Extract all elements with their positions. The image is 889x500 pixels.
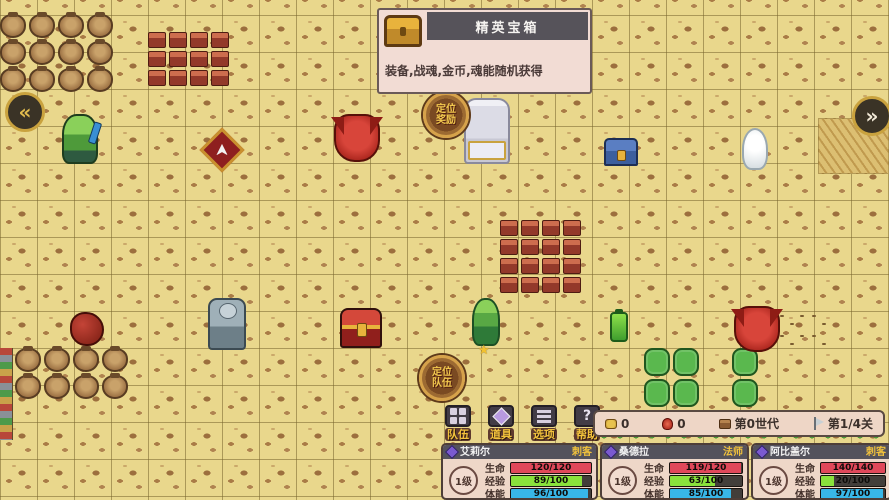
status-item: 第1/4关 — [812, 415, 873, 432]
generation-icon — [719, 419, 731, 429]
stat-bar: 85/100 — [669, 488, 743, 500]
brick — [211, 51, 229, 67]
spirit-enemy[interactable] — [742, 128, 768, 170]
level-badge: 1级 — [449, 466, 478, 495]
stat-row: 体能85/100 — [644, 487, 743, 500]
brick — [148, 70, 166, 86]
elite-chest[interactable] — [340, 308, 382, 348]
brick — [542, 239, 560, 255]
stat-value: 85/100 — [670, 489, 742, 499]
gem-icon — [755, 445, 769, 459]
cactus — [673, 348, 699, 376]
elite-chest-tooltip: 精英宝箱 装备,战魂,金币,魂能随机获得 — [377, 8, 592, 94]
character-class: 刺客 — [572, 446, 592, 459]
character-class: 刺客 — [866, 446, 886, 459]
pot — [102, 375, 128, 399]
brick — [500, 239, 518, 255]
badge-text: 定位 — [432, 367, 452, 378]
menu-button-items[interactable]: 道具 — [484, 405, 518, 441]
brick — [169, 51, 187, 67]
brick-pile — [500, 220, 582, 302]
footprints — [776, 310, 832, 352]
help-icon: ? — [583, 409, 591, 423]
menu-button-options[interactable]: 选项 — [527, 405, 561, 441]
stat-value: 63/100 — [670, 476, 742, 486]
stat-row: 体能96/100 — [485, 487, 592, 500]
stat-label: 体能 — [795, 486, 817, 500]
pot-cluster — [15, 348, 141, 436]
pot — [87, 41, 113, 65]
dragon-enemy[interactable] — [734, 306, 780, 352]
brick — [563, 239, 581, 255]
boss-emblem[interactable] — [199, 127, 244, 172]
status-item: 0 — [605, 417, 629, 431]
tooltip-description: 装备,战魂,金币,魂能随机获得 — [385, 62, 586, 79]
stat-rows: 生命140/140经验20/100体能97/100 — [795, 461, 886, 500]
stat-bar: 63/100 — [669, 475, 743, 487]
stat-label: 体能 — [485, 486, 507, 500]
status-text: 第1/4关 — [828, 415, 873, 432]
scroll-left-button[interactable]: « — [5, 92, 45, 132]
menu-button-box — [445, 405, 471, 427]
brick — [521, 239, 539, 255]
character-name: 阿比盖尔 — [770, 446, 863, 459]
menu-button-team[interactable]: 队伍 — [441, 405, 475, 441]
stage-icon — [812, 417, 824, 430]
brick — [542, 258, 560, 274]
stat-bar: 140/140 — [820, 462, 886, 474]
badge-text: 定位 — [436, 104, 456, 115]
team-dot — [450, 417, 457, 424]
brick — [500, 277, 518, 293]
stat-label: 体能 — [644, 486, 666, 500]
dragon-enemy[interactable] — [334, 114, 380, 162]
tooltip-title: 精英宝箱 — [427, 12, 588, 40]
panel-header: 桑德拉法师 — [602, 445, 747, 459]
cactus — [644, 379, 670, 407]
brick — [190, 51, 208, 67]
brick — [500, 220, 518, 236]
gold-icon — [605, 419, 617, 429]
cactus — [673, 379, 699, 407]
pot — [44, 348, 70, 372]
pot — [73, 348, 99, 372]
cactus — [644, 348, 670, 376]
stat-value: 120/120 — [511, 463, 591, 473]
team-dot — [450, 408, 457, 415]
menu-button-label: 队伍 — [445, 428, 471, 441]
cactus-cluster — [644, 348, 708, 414]
stat-row: 体能97/100 — [795, 487, 886, 500]
pot — [0, 68, 26, 92]
status-text: 0 — [621, 417, 629, 431]
shrine-statue[interactable] — [464, 98, 510, 164]
chevron-right-icon: » — [866, 106, 879, 126]
menu-button-label: 道具 — [488, 428, 514, 441]
knight-statue[interactable] — [208, 298, 246, 350]
stat-value: 119/120 — [670, 463, 742, 473]
menu-button-label: 选项 — [531, 428, 557, 441]
stat-value: 89/100 — [511, 476, 591, 486]
cactus — [732, 348, 758, 376]
party-panel-3[interactable]: 阿比盖尔刺客1级生命140/140经验20/100体能97/100 — [751, 443, 889, 500]
brick — [563, 258, 581, 274]
status-text: 第0世代 — [735, 415, 779, 432]
brick — [521, 220, 539, 236]
pot — [87, 14, 113, 38]
stat-bar: 97/100 — [820, 488, 886, 500]
level-badge: 1级 — [608, 466, 637, 495]
stat-value: 97/100 — [821, 489, 885, 499]
options-icon — [537, 410, 551, 423]
level-badge: 1级 — [759, 466, 788, 495]
status-text: 0 — [677, 417, 685, 431]
pot — [29, 14, 55, 38]
pot — [29, 41, 55, 65]
pot — [58, 68, 84, 92]
locate-reward-badge[interactable]: 定位 奖励 — [423, 92, 469, 138]
brick — [563, 277, 581, 293]
brick — [211, 70, 229, 86]
stat-bar: 89/100 — [510, 475, 592, 487]
gem-icon — [445, 445, 459, 459]
star-pickup[interactable]: ★ — [478, 344, 492, 358]
stat-bar: 96/100 — [510, 488, 592, 500]
pot — [87, 68, 113, 92]
stat-bar: 120/120 — [510, 462, 592, 474]
pot — [15, 375, 41, 399]
stat-bar: 119/120 — [669, 462, 743, 474]
status-item: 0 — [662, 417, 685, 431]
brick — [521, 277, 539, 293]
potion-bottle[interactable] — [610, 312, 628, 342]
pot — [0, 41, 26, 65]
badge-text: 奖励 — [436, 115, 456, 126]
stat-rows: 生命119/120经验63/100体能85/100 — [644, 461, 743, 500]
brick — [521, 258, 539, 274]
party-panels: 艾莉尔刺客1级生命120/120经验89/100体能96/100桑德拉法师1级生… — [441, 443, 889, 500]
menu-button-box — [488, 405, 514, 427]
item-icon — [492, 407, 510, 425]
party-panel-1[interactable]: 艾莉尔刺客1级生命120/120经验89/100体能96/100 — [441, 443, 598, 500]
team-dot — [459, 408, 466, 415]
character-name: 桑德拉 — [619, 446, 720, 459]
pot — [44, 375, 70, 399]
goblin-enemy[interactable] — [62, 114, 98, 164]
stat-value: 20/100 — [821, 476, 885, 486]
stat-rows: 生命120/120经验89/100体能96/100 — [485, 461, 592, 500]
brick — [500, 258, 518, 274]
scroll-right-button[interactable]: » — [852, 96, 889, 136]
panel-header: 艾莉尔刺客 — [443, 445, 596, 459]
locate-team-badge[interactable]: 定位 队伍 — [419, 355, 465, 401]
option-bar — [537, 420, 551, 423]
menu-button-bar: 队伍道具选项?帮助 — [441, 405, 604, 441]
pot — [73, 375, 99, 399]
totem-strip — [0, 348, 13, 440]
brick — [563, 220, 581, 236]
pot — [29, 68, 55, 92]
chevron-left-icon: « — [19, 102, 32, 122]
treasure-chest-blue[interactable] — [604, 138, 638, 166]
brick — [169, 70, 187, 86]
stat-bar: 20/100 — [820, 475, 886, 487]
chest-icon — [384, 15, 422, 47]
option-bar — [537, 415, 551, 418]
party-panel-2[interactable]: 桑德拉法师1级生命119/120经验63/100体能85/100 — [600, 443, 749, 500]
pot — [102, 348, 128, 372]
brick — [190, 70, 208, 86]
brick — [542, 277, 560, 293]
badge-text: 队伍 — [432, 378, 452, 389]
plant-hero[interactable] — [472, 298, 500, 346]
brick-pile — [148, 32, 234, 94]
cactus-cluster — [732, 348, 766, 412]
team-icon — [450, 408, 466, 424]
character-class: 法师 — [723, 446, 743, 459]
soul-icon — [662, 418, 673, 430]
brick — [148, 51, 166, 67]
gem-icon — [604, 445, 618, 459]
brick — [169, 32, 187, 48]
status-item: 第0世代 — [719, 415, 779, 432]
brick — [148, 32, 166, 48]
brick — [211, 32, 229, 48]
pot — [58, 14, 84, 38]
option-bar — [537, 410, 551, 413]
status-bar: 00第0世代第1/4关 — [593, 410, 885, 437]
pot — [58, 41, 84, 65]
cactus — [732, 379, 758, 407]
pot — [0, 14, 26, 38]
menu-button-box — [531, 405, 557, 427]
brick — [542, 220, 560, 236]
character-name: 艾莉尔 — [460, 446, 569, 459]
brick — [190, 32, 208, 48]
panel-header: 阿比盖尔刺客 — [753, 445, 889, 459]
stat-value: 96/100 — [511, 489, 591, 499]
pot — [15, 348, 41, 372]
stat-value: 140/140 — [821, 463, 885, 473]
slime-enemy[interactable] — [70, 312, 104, 346]
team-dot — [459, 417, 466, 424]
